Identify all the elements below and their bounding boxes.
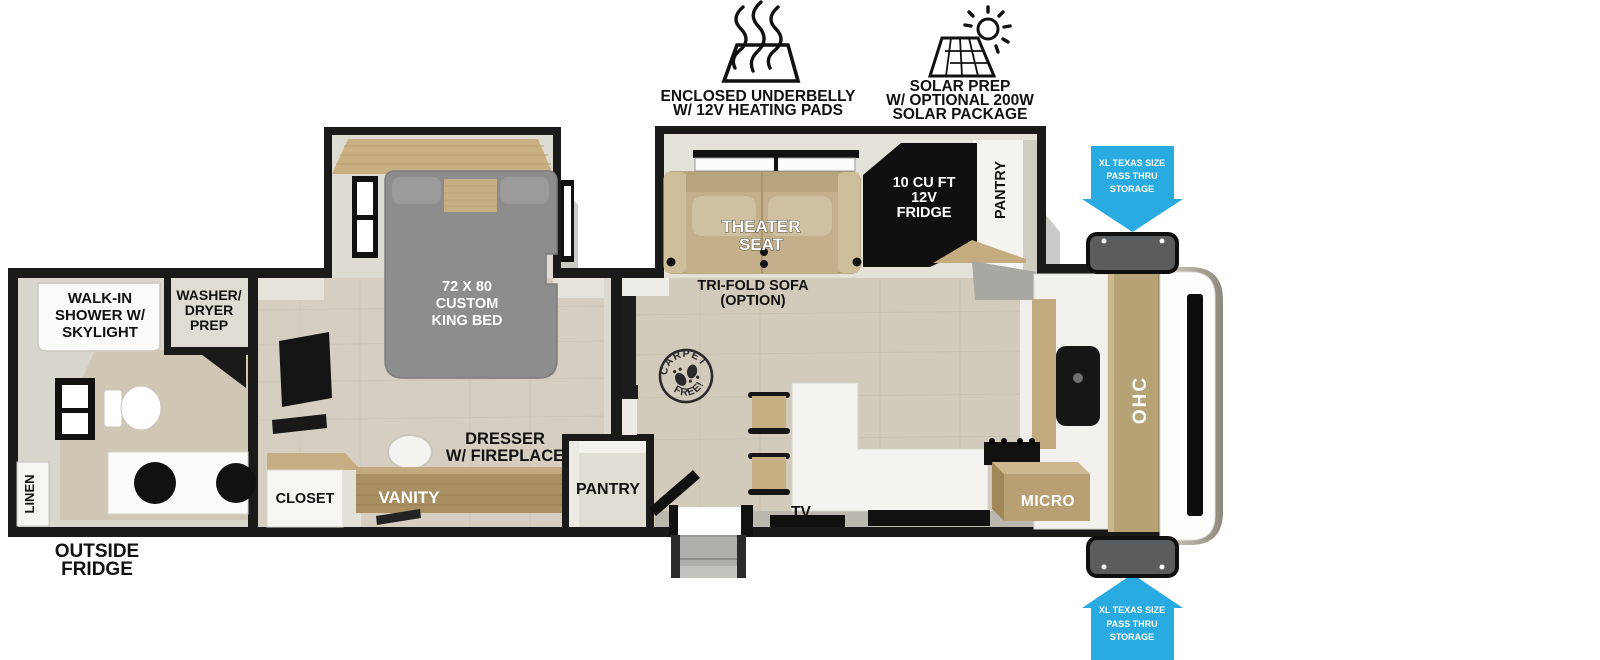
- svg-text:XL TEXAS SIZE: XL TEXAS SIZE: [1099, 605, 1165, 615]
- svg-text:STORAGE: STORAGE: [1110, 632, 1154, 642]
- svg-text:OHC: OHC: [1130, 376, 1151, 424]
- svg-text:FRIDGE: FRIDGE: [897, 205, 952, 221]
- svg-text:SOLAR PACKAGE: SOLAR PACKAGE: [893, 106, 1028, 123]
- svg-text:PANTRY: PANTRY: [993, 161, 1009, 219]
- svg-text:THEATER: THEATER: [721, 217, 800, 236]
- svg-text:W/ FIREPLACE: W/ FIREPLACE: [446, 447, 564, 465]
- svg-text:LINEN: LINEN: [22, 475, 37, 514]
- svg-text:PREP: PREP: [190, 317, 228, 333]
- svg-text:SHOWER W/: SHOWER W/: [55, 307, 146, 324]
- svg-text:DRYER: DRYER: [185, 302, 234, 318]
- svg-text:STORAGE: STORAGE: [1110, 184, 1154, 194]
- svg-text:CLOSET: CLOSET: [276, 491, 335, 507]
- svg-text:PANTRY: PANTRY: [576, 481, 640, 498]
- svg-text:PASS THRU: PASS THRU: [1106, 619, 1157, 629]
- svg-text:10 CU FT: 10 CU FT: [893, 175, 956, 191]
- svg-text:SEAT: SEAT: [739, 235, 784, 254]
- svg-text:MICRO: MICRO: [1021, 493, 1075, 510]
- svg-text:SKYLIGHT: SKYLIGHT: [62, 324, 138, 341]
- svg-text:WALK-IN: WALK-IN: [68, 290, 132, 307]
- svg-text:XL TEXAS SIZE: XL TEXAS SIZE: [1099, 158, 1165, 168]
- svg-text:PASS THRU: PASS THRU: [1106, 171, 1157, 181]
- svg-text:TV: TV: [791, 504, 811, 521]
- svg-text:FRIDGE: FRIDGE: [61, 559, 133, 580]
- svg-text:CUSTOM: CUSTOM: [436, 296, 499, 312]
- svg-text:72 X 80: 72 X 80: [442, 279, 492, 295]
- svg-text:KING BED: KING BED: [432, 313, 503, 329]
- svg-text:(OPTION): (OPTION): [720, 293, 785, 309]
- svg-text:VANITY: VANITY: [378, 488, 440, 507]
- svg-text:WASHER/: WASHER/: [176, 287, 241, 303]
- svg-text:DRESSER: DRESSER: [465, 430, 545, 448]
- svg-text:TRI-FOLD SOFA: TRI-FOLD SOFA: [697, 278, 809, 294]
- svg-text:W/ 12V HEATING PADS: W/ 12V HEATING PADS: [673, 102, 843, 119]
- svg-text:12V: 12V: [911, 190, 937, 206]
